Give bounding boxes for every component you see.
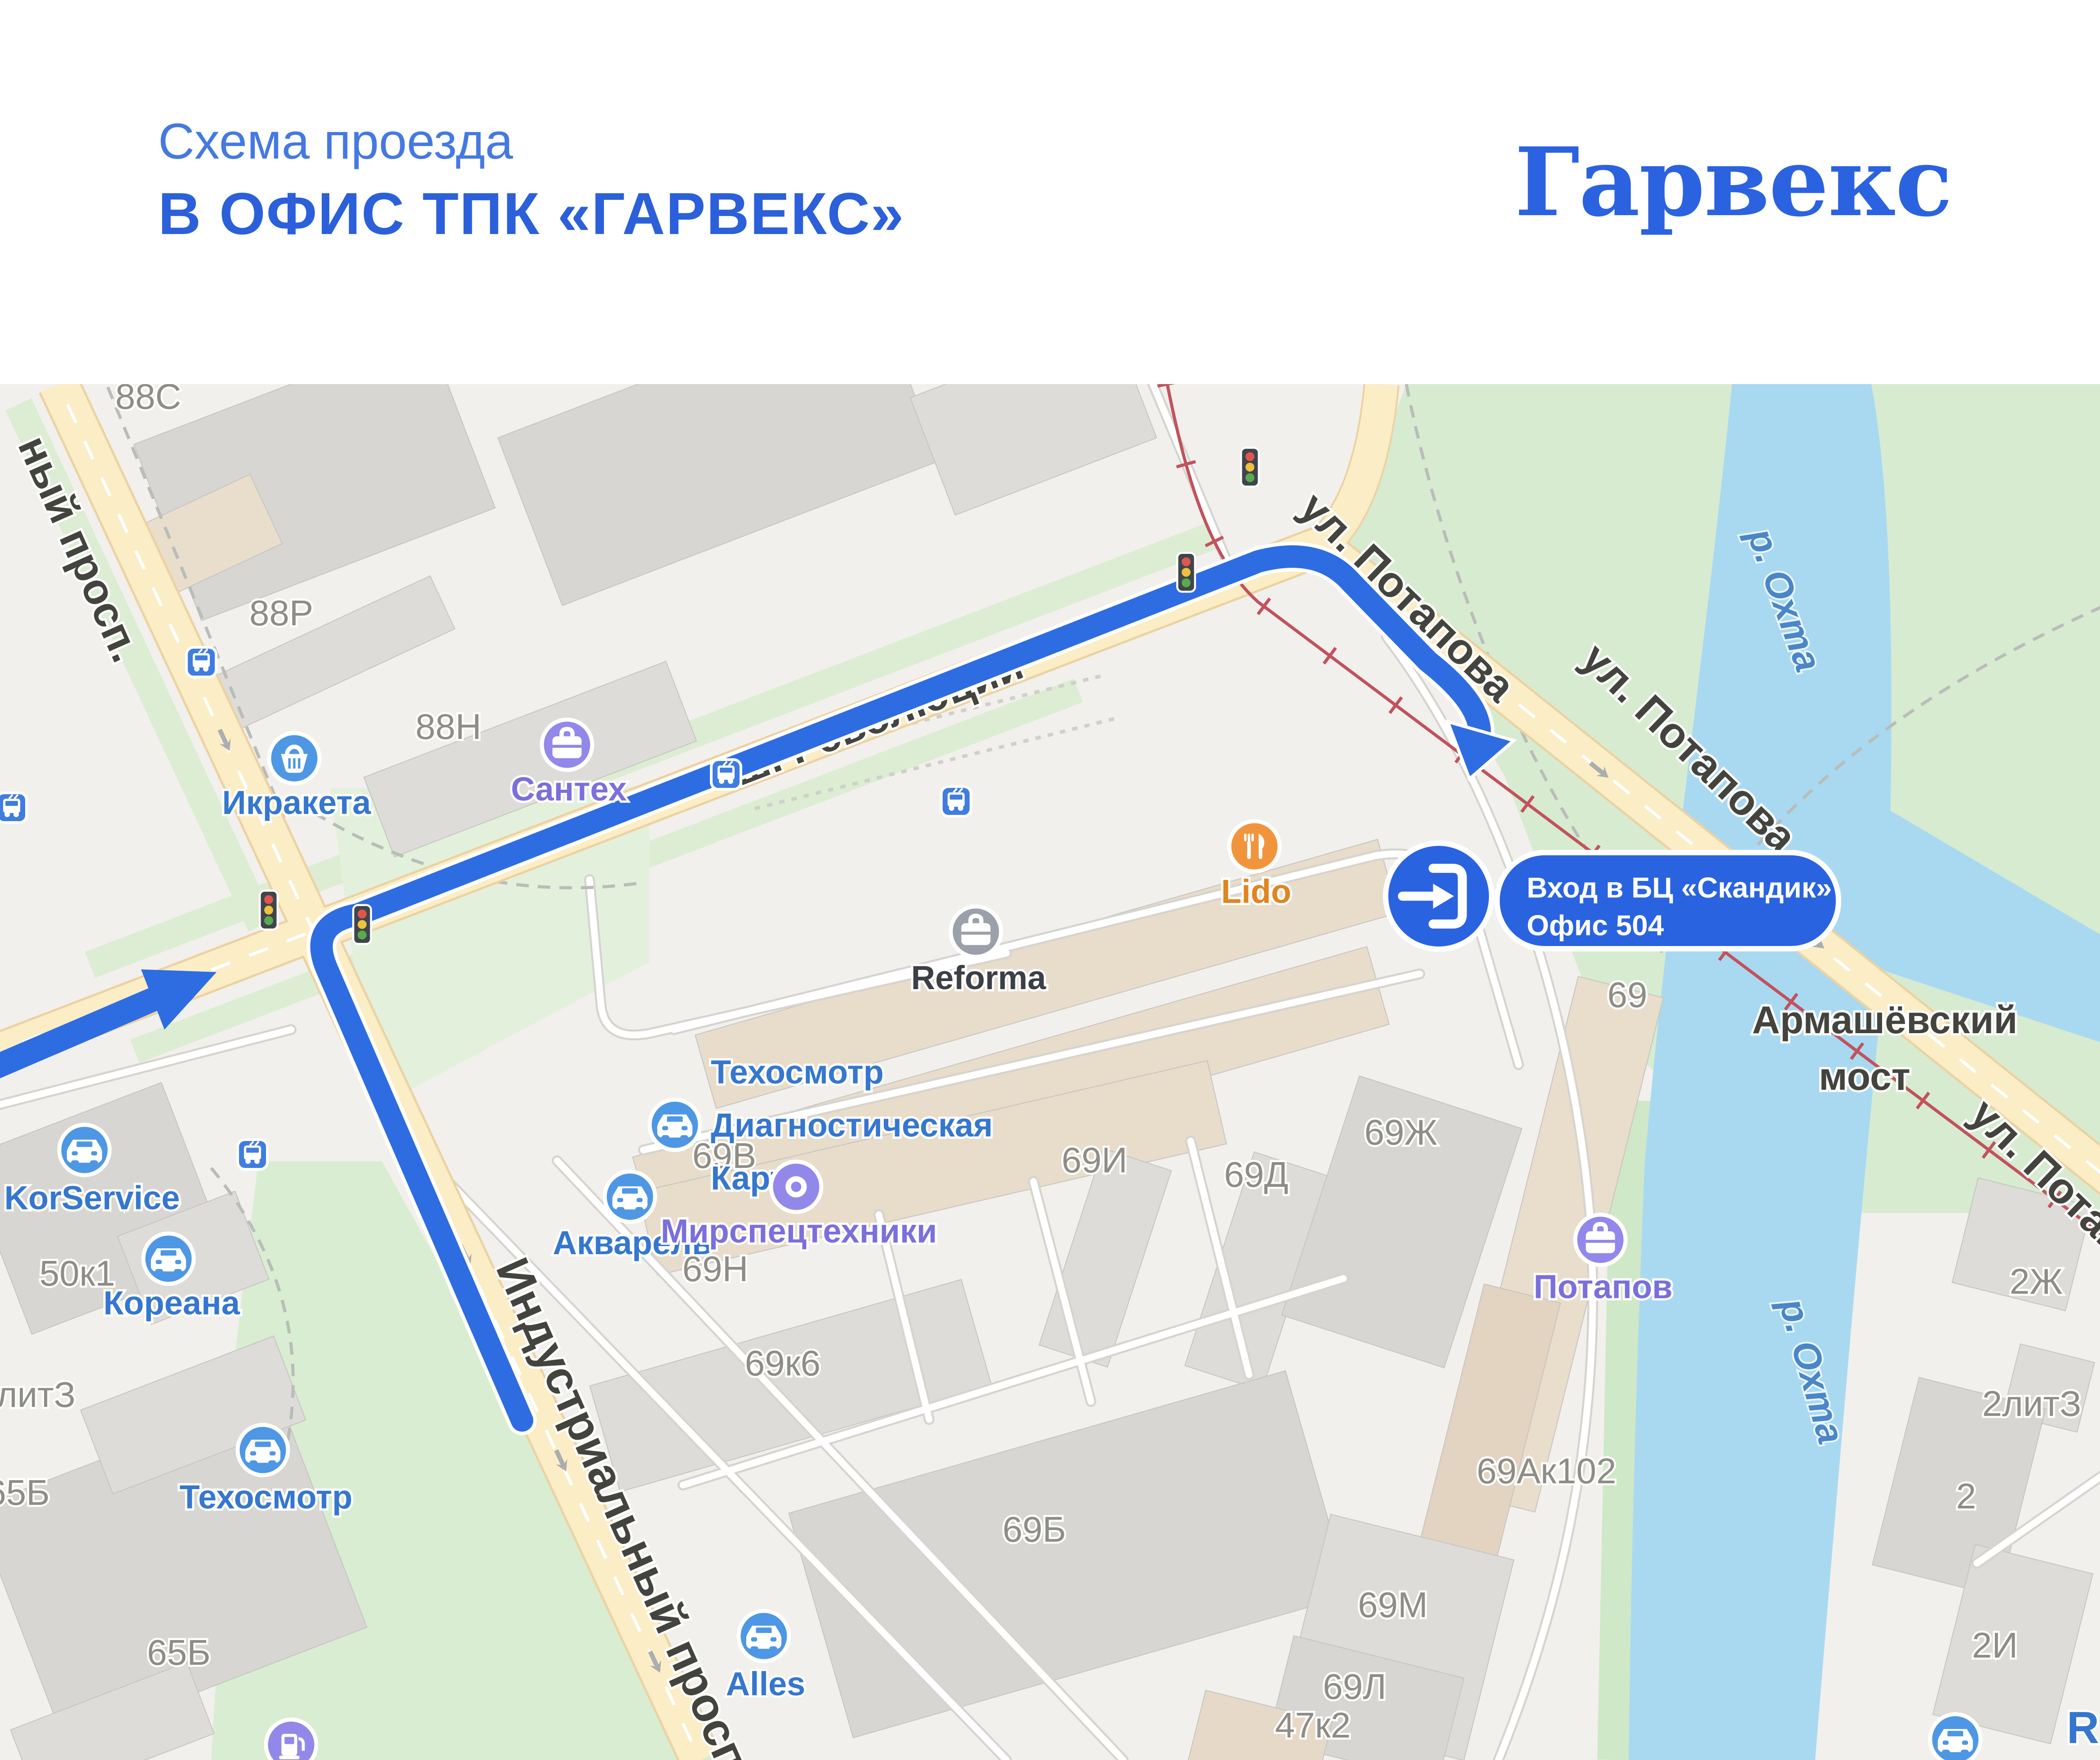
- building-label: 69Б: [1002, 1509, 1066, 1549]
- poi-label: Диагностическая: [711, 1106, 993, 1144]
- poi-label: Техосмотр: [180, 1478, 353, 1516]
- building-label: литЗ: [0, 1375, 75, 1415]
- poi-label: Кореана: [103, 1284, 240, 1322]
- building-label: 88Н: [416, 707, 482, 747]
- destination-callout: Вход в БЦ «Скандик» Офис 504: [1386, 843, 1839, 949]
- poi-label: Икракета: [222, 784, 371, 821]
- building-label: 65Б: [147, 1632, 210, 1672]
- building-label: 69Д: [1224, 1154, 1288, 1194]
- poi-label: Lido: [1221, 873, 1291, 910]
- car-icon: [151, 1248, 186, 1274]
- building-label: 47к2: [1275, 1705, 1351, 1745]
- traffic-light-icon: [1177, 553, 1195, 592]
- poi-label: Мирспецтехники: [660, 1212, 937, 1250]
- car-icon: [245, 1440, 280, 1466]
- car-icon: [67, 1140, 102, 1166]
- traffic-light-icon: [260, 891, 278, 929]
- poi-label: KorService: [4, 1179, 180, 1216]
- building-label: 69Ак102: [1477, 1451, 1617, 1491]
- brand-logo: Гарвекс: [1515, 127, 1952, 238]
- page-subtitle: Схема проезда: [158, 112, 513, 170]
- building-label: 69: [1608, 975, 1648, 1015]
- car-icon: [746, 1626, 781, 1652]
- car-icon: [612, 1186, 647, 1212]
- building-label: 2Ж: [2010, 1261, 2063, 1301]
- poi-circle: [771, 1162, 821, 1212]
- page-title: В ОФИС ТПК «ГАРВЕКС»: [158, 180, 904, 248]
- bus-stop-icon: [238, 1140, 267, 1169]
- building-label: 69Л: [1323, 1667, 1386, 1707]
- street-label: мост: [1819, 1055, 1910, 1098]
- building-label: 69Ж: [1365, 1112, 1438, 1152]
- poi-label: Потапов: [1533, 1268, 1672, 1305]
- bus-stop-icon: [711, 760, 741, 789]
- street-label: Армашёвский: [1752, 999, 2018, 1042]
- building-label: 88Р: [249, 593, 313, 633]
- callout-line1: Вход в БЦ «Скандик»: [1527, 871, 1832, 904]
- map-canvas: ный просп.Индустриальный просп.ш. Револю…: [0, 384, 2100, 1760]
- traffic-light-icon: [1241, 448, 1259, 486]
- car-icon: [657, 1114, 692, 1141]
- traffic-light-icon: [353, 905, 371, 944]
- poi-circle: [1229, 821, 1280, 871]
- building-label: 2: [1956, 1476, 1976, 1516]
- building-label: 88С: [115, 384, 182, 416]
- poi-label: R: [2067, 1703, 2099, 1753]
- bus-stop-icon: [186, 647, 216, 677]
- car-icon: [1938, 1729, 1973, 1755]
- poi-label: Сантех: [511, 770, 627, 808]
- building-label: 2И: [1972, 1625, 2018, 1665]
- poi-label: Reforma: [911, 959, 1046, 996]
- bus-stop-icon: [0, 793, 27, 823]
- building-label: 65Б: [0, 1473, 50, 1512]
- callout-line2: Офис 504: [1527, 909, 1664, 942]
- building-label: 69М: [1358, 1585, 1428, 1625]
- route-scheme-page: Схема проезда В ОФИС ТПК «ГАРВЕКС» Гарве…: [0, 0, 2100, 1760]
- bus-stop-icon: [941, 787, 971, 816]
- poi-label: Alles: [726, 1665, 806, 1703]
- building-label: 69И: [1062, 1140, 1127, 1180]
- poi-fuel: [266, 1720, 316, 1760]
- building-label: 69к6: [745, 1343, 820, 1383]
- poi-label: Техосмотр: [711, 1053, 884, 1091]
- building-label: 2литЗ: [1982, 1384, 2082, 1424]
